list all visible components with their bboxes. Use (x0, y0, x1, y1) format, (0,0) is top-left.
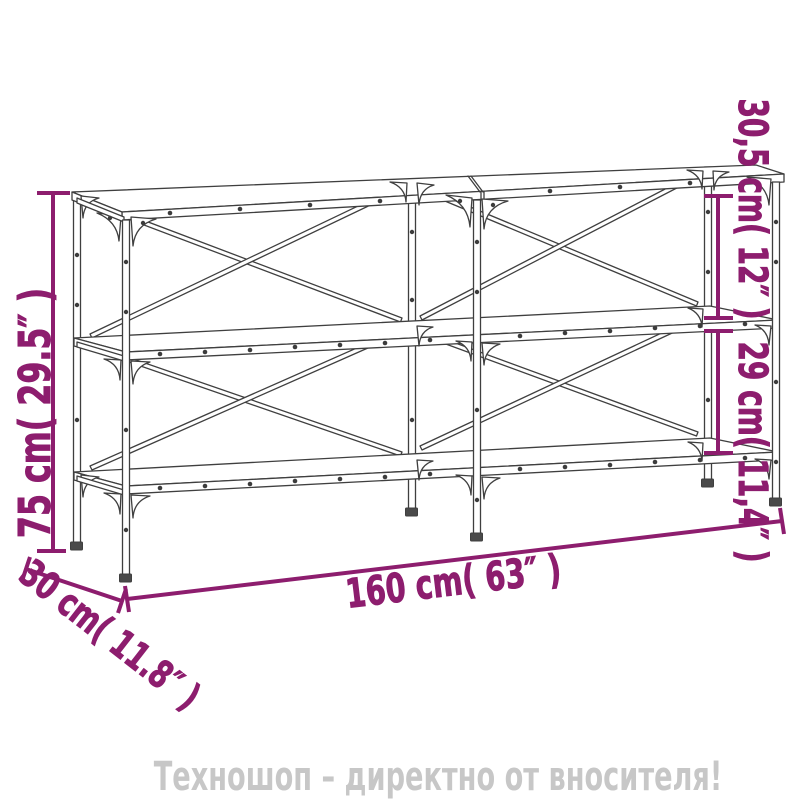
foot-front-left (120, 574, 132, 582)
console-table-drawing (71, 165, 785, 582)
diagram-canvas: 75 cm( 29.5″ ) 30,5 cm( 12″ ) 29 cm( 11,… (0, 0, 800, 800)
height-dimension: 75 cm( 29.5″ ) (10, 193, 70, 551)
height-dimension-label: 75 cm( 29.5″ ) (10, 288, 62, 538)
top-section-dimension-label: 30,5 cm( 12″ ) (729, 98, 775, 319)
tabletop (72, 165, 784, 220)
depth-dimension: 30 cm( 11.8″ ) (11, 550, 209, 718)
bottom-section-dimension-label: 29 cm( 11,4″ ) (729, 341, 775, 562)
foot-back-left (71, 542, 83, 550)
foot-back-right (702, 479, 714, 487)
store-banner: Техношоп – директно от вносителя! (154, 754, 723, 800)
foot-back-center (406, 508, 418, 516)
store-banner-text: Техношоп – директно от вносителя! (154, 754, 723, 800)
depth-dimension-label: 30 cm( 11.8″ ) (11, 550, 209, 718)
bottom-shelf (74, 438, 778, 518)
length-dimension: 160 cm( 63″ ) (125, 508, 784, 618)
foot-front-center (471, 533, 483, 541)
product-dimension-diagram: 75 cm( 29.5″ ) 30,5 cm( 12″ ) 29 cm( 11,… (0, 0, 800, 800)
front-legs (120, 182, 782, 582)
top-section-dimension: 30,5 cm( 12″ ) (704, 98, 775, 319)
length-dimension-label: 160 cm( 63″ ) (343, 547, 563, 618)
